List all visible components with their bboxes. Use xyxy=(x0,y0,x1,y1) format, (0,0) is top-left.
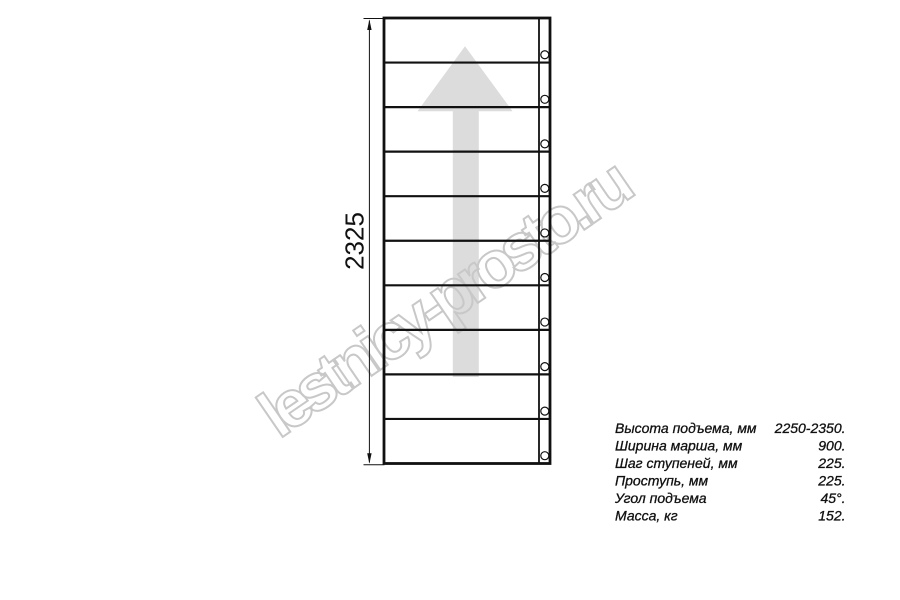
svg-text:Шаг ступеней, мм: Шаг ступеней, мм xyxy=(615,455,738,471)
svg-text:45°.: 45°. xyxy=(820,490,845,506)
svg-text:2325: 2325 xyxy=(340,212,370,270)
svg-text:2250-2350.: 2250-2350. xyxy=(774,420,846,436)
svg-text:Высота подъема, мм: Высота подъема, мм xyxy=(615,420,757,436)
svg-text:lestnicy-prosto.ru: lestnicy-prosto.ru xyxy=(245,143,646,451)
svg-text:225.: 225. xyxy=(817,473,845,489)
svg-text:Масса, кг: Масса, кг xyxy=(615,508,678,524)
svg-text:152.: 152. xyxy=(818,508,845,524)
svg-text:Проступь, мм: Проступь, мм xyxy=(615,473,709,489)
svg-text:225.: 225. xyxy=(817,455,845,471)
svg-text:900.: 900. xyxy=(818,438,845,454)
svg-text:Ширина марша, мм: Ширина марша, мм xyxy=(615,438,743,454)
svg-text:Угол подъема: Угол подъема xyxy=(614,490,707,506)
